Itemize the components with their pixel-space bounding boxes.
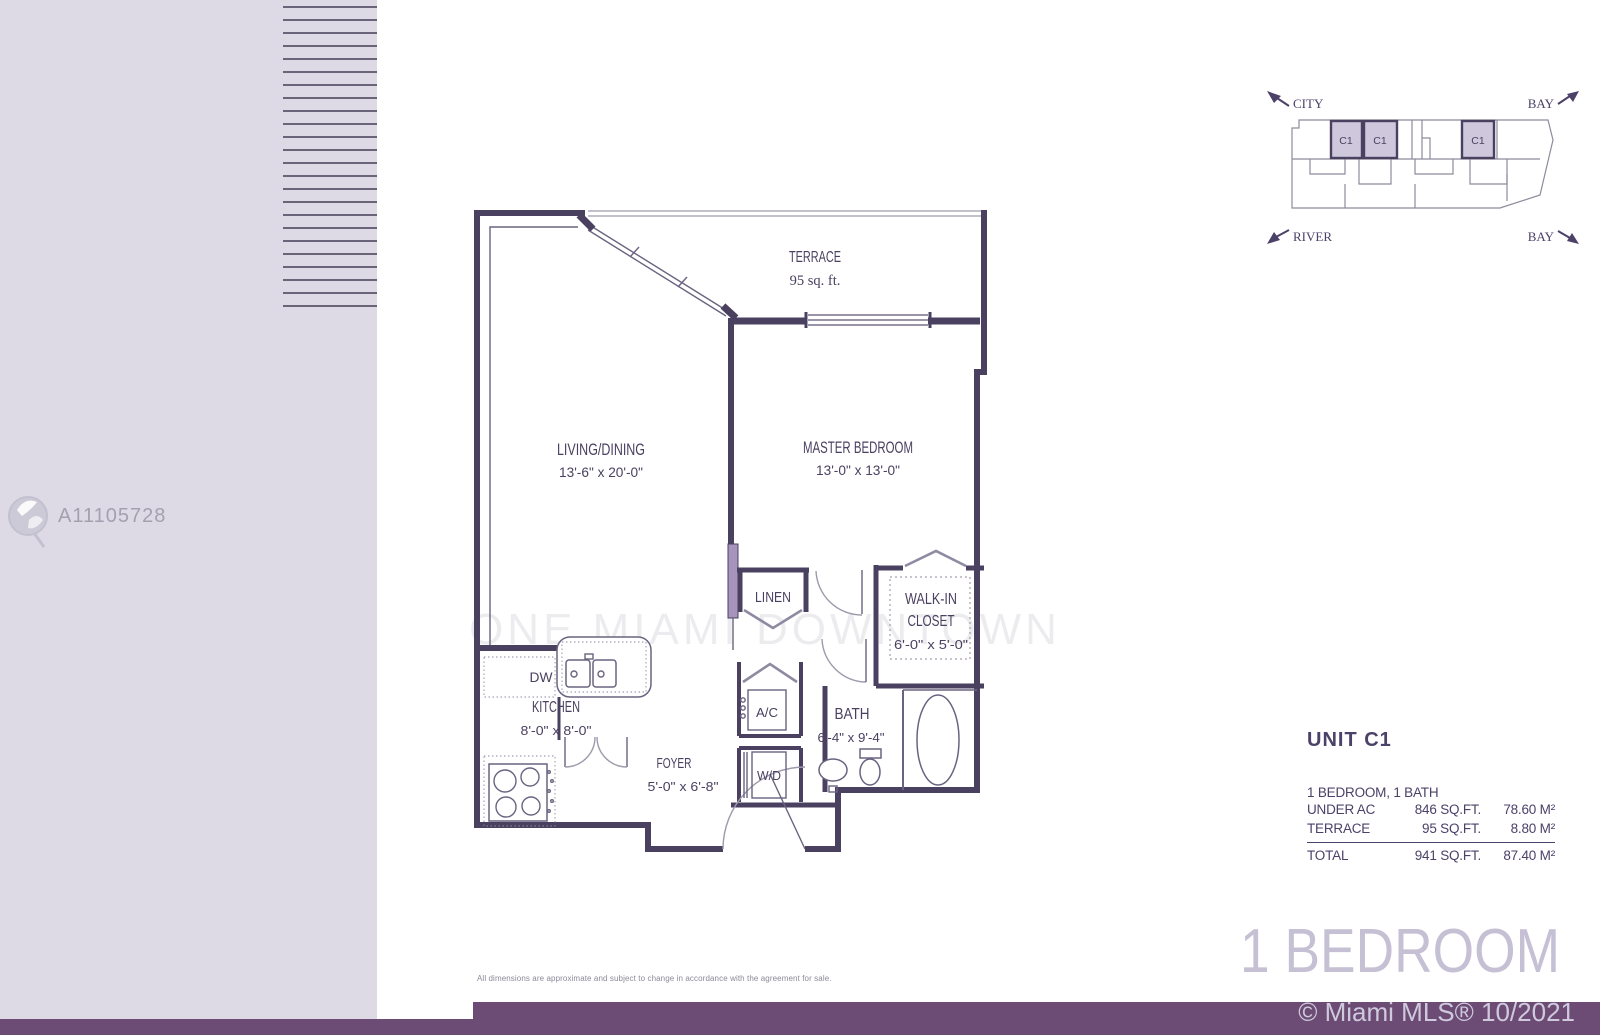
unit-subtitle: 1 BEDROOM, 1 BATH (1307, 785, 1555, 800)
terrace-walls (579, 211, 982, 318)
city-arrow-icon (1267, 91, 1281, 103)
compass-city: CITY (1267, 91, 1324, 111)
plan-type-banner: 1 BEDROOM (1228, 912, 1573, 984)
row-m2: 8.80 M² (1481, 819, 1555, 838)
ac-door-icon (743, 664, 797, 682)
pocket-door (728, 544, 738, 618)
kitchen-sink (566, 660, 590, 687)
ac-label: A/C (756, 705, 778, 720)
row-m2: 87.40 M² (1481, 846, 1555, 865)
unit-c1-marker-label: C1 (1471, 135, 1485, 147)
bath-dims: 6'-4" x 9'-4" (818, 730, 885, 745)
bay-top-label: BAY (1528, 96, 1555, 111)
table-row: TERRACE 95 SQ.FT. 8.80 M² (1307, 819, 1555, 838)
disclaimer-text: All dimensions are approximate and subje… (477, 974, 832, 983)
unit-c1-marker-label: C1 (1373, 135, 1387, 147)
building-key-plan: CITY BAY RIVER BAY (1255, 88, 1587, 248)
bottom-bar-left (0, 1019, 473, 1035)
row-label: TERRACE (1307, 819, 1389, 838)
closet-door-icon (905, 551, 966, 566)
dishwasher-label: DW (530, 669, 554, 685)
master-window-wall (731, 312, 980, 328)
bay-bottom-arrow-icon (1567, 233, 1579, 244)
living-dining-dims: 13'-6" x 20'-0" (559, 465, 643, 480)
table-row: UNDER AC 846 SQ.FT. 78.60 M² (1307, 800, 1555, 819)
unit-info-block: UNIT C1 1 BEDROOM, 1 BATH UNDER AC 846 S… (1307, 729, 1555, 865)
mls-watermark-icon (6, 489, 58, 553)
wd-label: W/D (757, 768, 781, 783)
floorplan-sheet: A11105728 CITY BAY RIVER BAY (0, 0, 1600, 1035)
bathtub (917, 695, 959, 785)
compass-river: RIVER (1267, 229, 1332, 244)
row-sqft: 846 SQ.FT. (1389, 800, 1481, 819)
unit-title: UNIT C1 (1307, 729, 1555, 752)
terrace-label: TERRACE (789, 249, 841, 266)
master-bedroom-dims: 13'-0" x 13'-0" (816, 463, 900, 478)
row-label: TOTAL (1307, 846, 1389, 865)
toilet (860, 749, 881, 758)
kitchen-label: KITCHEN (532, 699, 580, 716)
foyer-label: FOYER (657, 755, 692, 772)
linen-label: LINEN (755, 589, 791, 606)
compass-bay-bottom: BAY (1528, 229, 1579, 244)
table-row-total: TOTAL 941 SQ.FT. 87.40 M² (1307, 842, 1555, 865)
compass-bay-top: BAY (1528, 91, 1579, 111)
unit-c1-marker-label: C1 (1339, 135, 1353, 147)
decorative-stripes (283, 6, 377, 314)
bay-bottom-label: BAY (1528, 229, 1555, 244)
row-sqft: 95 SQ.FT. (1389, 819, 1481, 838)
master-bedroom-label: MASTER BEDROOM (803, 439, 913, 457)
terrace-area-label: 95 sq. ft. (790, 273, 841, 289)
bath-label: BATH (835, 706, 870, 723)
copyright-watermark: © Miami MLS® 10/2021 (1298, 997, 1575, 1028)
room-labels: TERRACE 95 sq. ft. LIVING/DINING 13'-6" … (521, 249, 969, 794)
kitchen-dims: 8'-0" x 8'-0" (521, 723, 592, 738)
river-arrow-icon (1267, 232, 1280, 244)
row-m2: 78.60 M² (1481, 800, 1555, 819)
walkin-label-1: WALK-IN (905, 591, 957, 608)
row-sqft: 941 SQ.FT. (1389, 846, 1481, 865)
left-accent-panel: A11105728 (0, 0, 377, 1019)
living-dining-label: LIVING/DINING (557, 441, 645, 459)
river-label: RIVER (1293, 229, 1332, 244)
listing-id-watermark: A11105728 (58, 505, 166, 528)
walkin-dims: 6'-0" x 5'-0" (894, 637, 968, 652)
toilet-bowl (860, 759, 880, 785)
city-label: CITY (1293, 96, 1324, 111)
foyer-dims: 5'-0" x 6'-8" (648, 779, 719, 794)
floor-plan-drawing: ONE MIAMI DOWNTOWN (440, 190, 1060, 860)
bath-sink (819, 759, 847, 781)
walkin-label-2: CLOSET (908, 613, 955, 630)
row-label: UNDER AC (1307, 800, 1389, 819)
kitchen-double-door (565, 737, 627, 767)
plan-type-text: 1 BEDROOM (1240, 917, 1560, 984)
